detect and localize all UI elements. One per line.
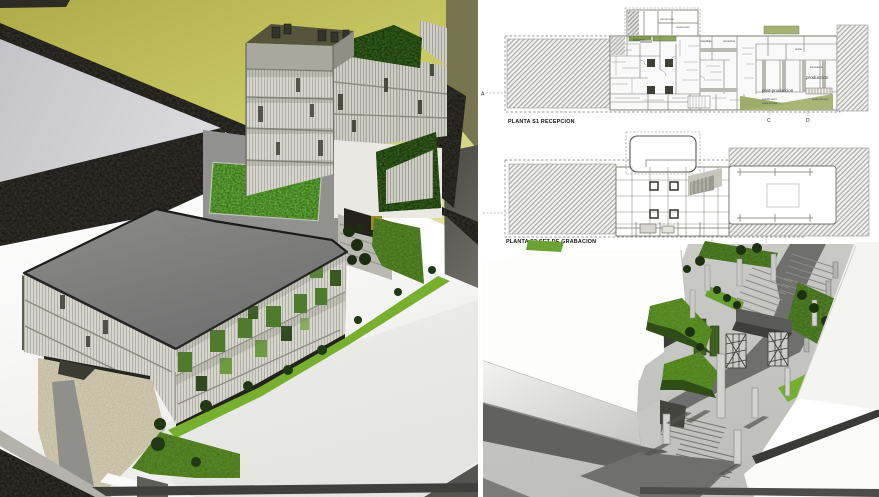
svg-text:vestuarios: vestuarios: [676, 25, 690, 29]
svg-text:camerinos: camerinos: [660, 17, 674, 21]
svg-text:produccion: produccion: [806, 75, 829, 80]
svg-text:venta: venta: [795, 47, 802, 51]
svg-text:post-produccion: post-produccion: [762, 88, 794, 93]
svg-text:maquillaje: maquillaje: [700, 39, 712, 43]
svg-text:C: C: [767, 118, 771, 124]
svg-text:D: D: [806, 118, 810, 124]
svg-text:camerinos: camerinos: [723, 39, 736, 43]
svg-text:audio & mast: audio & mast: [762, 101, 777, 105]
svg-text:PLANTA S1 RECEPCION: PLANTA S1 RECEPCION: [508, 119, 575, 125]
svg-text:estudio elect: estudio elect: [762, 97, 777, 101]
svg-text:iluminacion: iluminacion: [810, 65, 824, 69]
svg-text:audio locucion: audio locucion: [812, 97, 829, 101]
svg-text:sala verde: sala verde: [633, 38, 646, 42]
